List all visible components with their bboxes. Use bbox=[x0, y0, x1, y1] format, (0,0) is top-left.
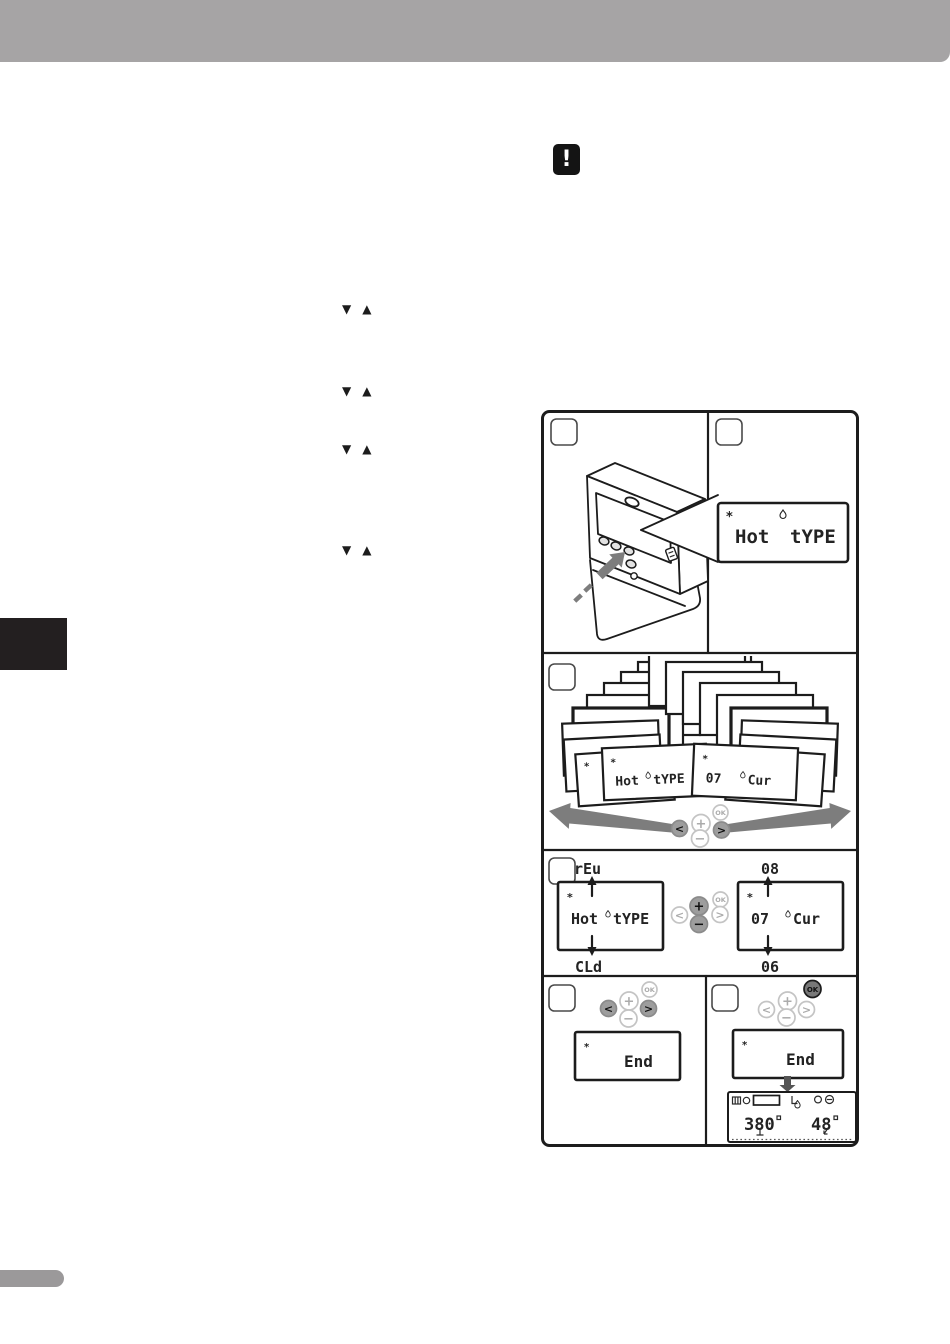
left-button-glyph: < bbox=[604, 1003, 613, 1016]
lcd-end-word: End bbox=[786, 1050, 815, 1069]
step-box-6 bbox=[712, 985, 738, 1011]
lcd-menu-screen: * Hot tYPE bbox=[718, 503, 848, 562]
up-arrow-icon: ▲ bbox=[362, 544, 371, 556]
lcd-option-down: CLd bbox=[575, 958, 602, 976]
lcd-home-setpoint: 48 bbox=[811, 1115, 831, 1135]
warning-icon: ! bbox=[553, 144, 580, 175]
plus-button-glyph: + bbox=[782, 995, 793, 1010]
up-arrow-icon: ▲ bbox=[362, 443, 371, 455]
down-arrow-icon: ▼ bbox=[342, 385, 351, 397]
step-box-1 bbox=[551, 419, 577, 445]
right-button-glyph: > bbox=[802, 1004, 811, 1017]
lcd-value-down: 06 bbox=[761, 958, 779, 976]
lcd-star-icon: * bbox=[567, 891, 573, 904]
up-arrow-icon: ▲ bbox=[362, 385, 371, 397]
instruction-figure: * Hot tYPE * t * * bbox=[541, 410, 859, 1147]
down-arrow-icon: ▼ bbox=[342, 303, 351, 315]
lcd-value-up: 08 bbox=[761, 860, 779, 878]
minus-button-glyph: − bbox=[781, 1011, 792, 1026]
footer-page-tab bbox=[0, 1270, 64, 1287]
right-button-glyph: > bbox=[644, 1003, 653, 1016]
chapter-side-tab bbox=[0, 618, 67, 670]
right-button-glyph: > bbox=[715, 909, 724, 922]
lcd-value-num: 07 bbox=[705, 771, 721, 787]
lcd-value-front-card: * 07 Cur bbox=[692, 744, 798, 800]
minus-button-glyph: − bbox=[695, 832, 706, 847]
lcd-home-temp: 380 bbox=[744, 1115, 775, 1135]
lcd-menu-word1: Hot bbox=[571, 910, 598, 928]
lcd-star-icon: * bbox=[747, 891, 753, 904]
step-box-4 bbox=[549, 858, 575, 884]
lcd-value-word: Cur bbox=[793, 910, 820, 928]
lcd-home-screen: 380 48 bbox=[728, 1092, 856, 1142]
ok-button-glyph: OK bbox=[807, 986, 819, 994]
down-arrow-icon: ▼ bbox=[342, 544, 351, 556]
lcd-menu-word2: tYPE bbox=[790, 526, 836, 548]
lcd-end-screen: * End bbox=[575, 1032, 680, 1080]
plus-button-glyph: + bbox=[624, 995, 635, 1010]
lcd-star-icon: * bbox=[726, 510, 733, 525]
page-header-bar bbox=[0, 0, 950, 62]
ok-button-glyph: OK bbox=[715, 809, 727, 817]
button-glyph-pair-1: ▼ ▲ bbox=[342, 303, 371, 315]
down-arrow-icon: ▼ bbox=[342, 443, 351, 455]
lcd-end-word: End bbox=[624, 1052, 653, 1071]
lcd-option-up: rEu bbox=[574, 860, 601, 878]
exclamation-glyph: ! bbox=[561, 147, 571, 172]
device-screw bbox=[631, 573, 637, 579]
lcd-menu-word1: Hot bbox=[735, 526, 769, 548]
lcd-menu-word2: tYPE bbox=[653, 772, 685, 788]
lcd-star-icon: * bbox=[584, 1042, 590, 1053]
left-button-glyph: < bbox=[762, 1004, 771, 1017]
lcd-end-screen-confirm: * End bbox=[733, 1030, 843, 1078]
left-button-glyph: < bbox=[675, 823, 684, 836]
left-button-glyph: < bbox=[675, 909, 684, 922]
step-box-2 bbox=[716, 419, 742, 445]
lcd-value-num: 07 bbox=[751, 910, 769, 928]
lcd-menu-word2: tYPE bbox=[613, 910, 649, 928]
lcd-star-icon: * bbox=[742, 1040, 748, 1051]
ok-button-glyph: OK bbox=[644, 986, 656, 994]
minus-button-glyph: − bbox=[623, 1012, 634, 1027]
lcd-menu-word1: Hot bbox=[615, 774, 639, 790]
button-glyph-pair-2: ▼ ▲ bbox=[342, 385, 371, 397]
button-glyph-pair-3: ▼ ▲ bbox=[342, 443, 371, 455]
button-glyph-pair-4: ▼ ▲ bbox=[342, 544, 371, 556]
ok-button-glyph: OK bbox=[715, 896, 727, 904]
up-arrow-icon: ▲ bbox=[362, 303, 371, 315]
step-box-5 bbox=[549, 985, 575, 1011]
minus-button-glyph: − bbox=[694, 918, 705, 933]
step-box-3 bbox=[549, 664, 575, 690]
plus-button-glyph: + bbox=[694, 900, 705, 915]
lcd-value-word: Cur bbox=[747, 773, 771, 789]
right-button-glyph: > bbox=[717, 824, 726, 837]
